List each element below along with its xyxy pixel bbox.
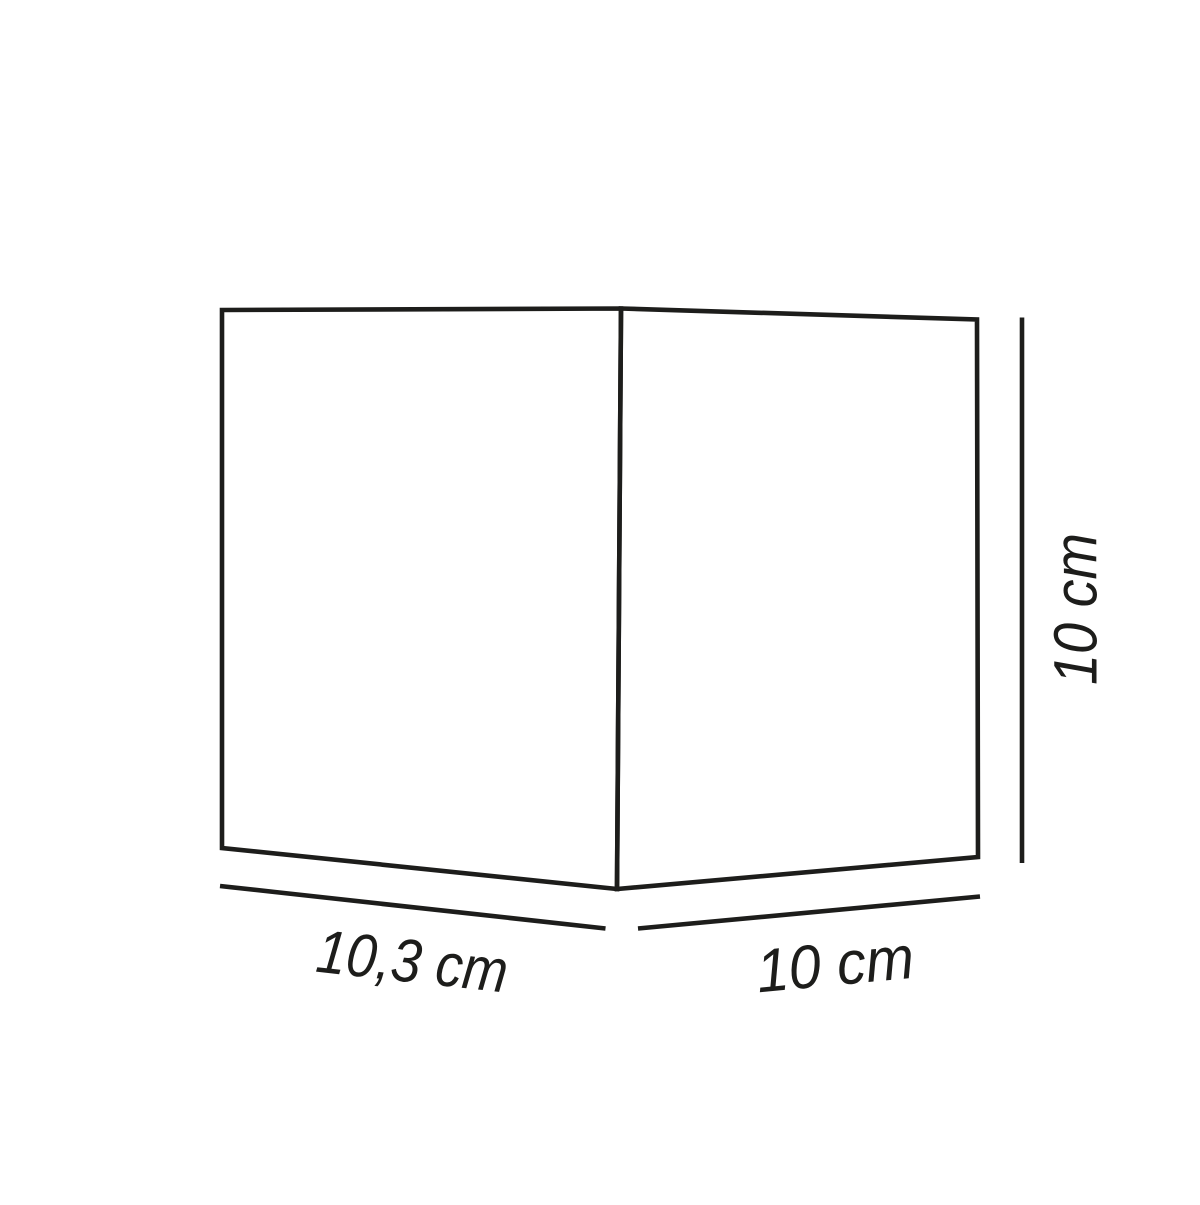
svg-text:10 cm: 10 cm	[1042, 533, 1110, 685]
